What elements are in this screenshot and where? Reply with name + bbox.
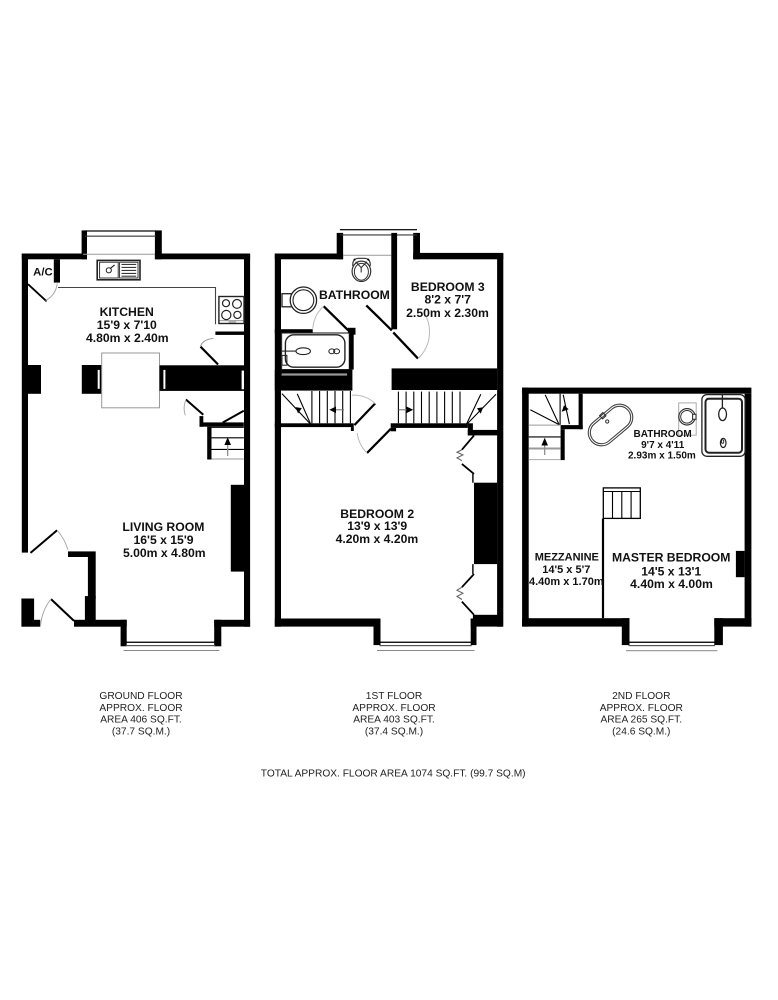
svg-text:APPROX. FLOOR: APPROX. FLOOR: [352, 703, 435, 714]
svg-text:(24.6 SQ.M.): (24.6 SQ.M.): [612, 727, 670, 738]
svg-text:13'9 x 13'9: 13'9 x 13'9: [347, 519, 407, 533]
svg-text:TOTAL APPROX. FLOOR AREA 1074: TOTAL APPROX. FLOOR AREA 1074 SQ.FT. (99…: [261, 769, 526, 780]
svg-text:A/C: A/C: [33, 266, 52, 278]
svg-text:4.40m x 1.70m: 4.40m x 1.70m: [529, 576, 604, 588]
svg-text:8'2 x 7'7: 8'2 x 7'7: [424, 293, 471, 307]
svg-text:APPROX. FLOOR: APPROX. FLOOR: [600, 703, 683, 714]
svg-text:BATHROOM: BATHROOM: [634, 429, 692, 440]
svg-text:AREA 265 SQ.FT.: AREA 265 SQ.FT.: [601, 714, 683, 725]
svg-text:15'9 x 7'10: 15'9 x 7'10: [97, 318, 157, 332]
svg-text:AREA 403 SQ.FT.: AREA 403 SQ.FT.: [353, 714, 435, 725]
svg-text:2.50m x 2.30m: 2.50m x 2.30m: [406, 306, 489, 320]
svg-text:LIVING ROOM: LIVING ROOM: [122, 520, 204, 534]
svg-text:AREA 406 SQ.FT.: AREA 406 SQ.FT.: [100, 714, 182, 725]
svg-text:4.80m x 2.40m: 4.80m x 2.40m: [86, 331, 169, 345]
svg-text:2ND FLOOR: 2ND FLOOR: [612, 691, 670, 702]
svg-text:APPROX. FLOOR: APPROX. FLOOR: [99, 703, 182, 714]
svg-text:4.20m x 4.20m: 4.20m x 4.20m: [336, 532, 419, 546]
svg-text:5.00m x 4.80m: 5.00m x 4.80m: [123, 546, 206, 560]
svg-text:(37.7 SQ.M.): (37.7 SQ.M.): [112, 727, 170, 738]
svg-text:14'5 x 5'7: 14'5 x 5'7: [542, 564, 590, 576]
svg-text:GROUND FLOOR: GROUND FLOOR: [99, 691, 182, 702]
svg-text:9'7 x 4'11: 9'7 x 4'11: [641, 440, 685, 451]
svg-text:MEZZANINE: MEZZANINE: [535, 552, 599, 564]
svg-text:1ST FLOOR: 1ST FLOOR: [366, 691, 422, 702]
svg-text:2.93m x 1.50m: 2.93m x 1.50m: [628, 451, 696, 462]
svg-text:4.40m x 4.00m: 4.40m x 4.00m: [630, 577, 713, 591]
svg-text:(37.4 SQ.M.): (37.4 SQ.M.): [365, 727, 423, 738]
svg-text:MASTER BEDROOM: MASTER BEDROOM: [612, 550, 731, 564]
svg-text:BATHROOM: BATHROOM: [319, 288, 390, 302]
svg-text:KITCHEN: KITCHEN: [100, 305, 154, 319]
